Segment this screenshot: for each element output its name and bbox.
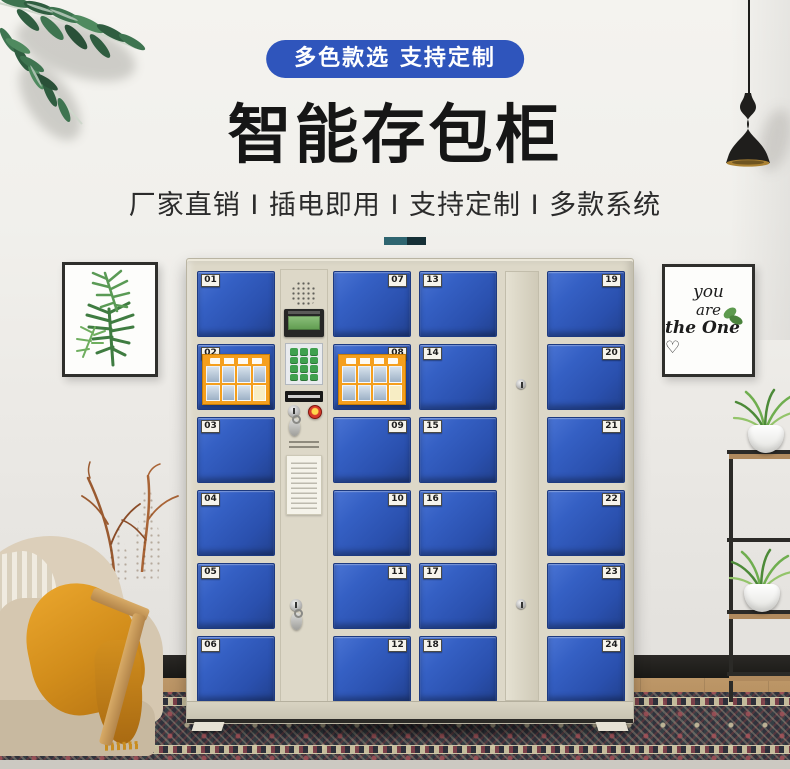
locker-door-19: 19 [547, 271, 625, 337]
keypad-button [300, 365, 308, 372]
shelf-board [729, 676, 790, 681]
door-number-plate: 20 [602, 347, 621, 360]
locker-door-24: 24 [547, 636, 625, 702]
smart-locker-cabinet: 0102030405060708091011121314151617181920… [186, 258, 634, 724]
display-screen [284, 309, 324, 337]
screen-glass [288, 316, 320, 330]
locker-door-08: 08 [333, 344, 411, 410]
poster-thumbnail [358, 366, 372, 383]
leaf-artwork-frame [62, 262, 158, 377]
locker-door-07: 07 [333, 271, 411, 337]
hanging-keys-icon [291, 613, 302, 630]
keypad-button [300, 374, 308, 381]
poster-thumbnail [237, 366, 251, 383]
locker-door-11: 11 [333, 563, 411, 629]
door-number-plate: 23 [602, 566, 621, 579]
door-number-plate: 07 [388, 274, 407, 287]
locker-door-04: 04 [197, 490, 275, 556]
locker-door-01: 01 [197, 271, 275, 337]
door-number-plate: 24 [602, 639, 621, 652]
door-number-plate: 14 [423, 347, 442, 360]
door-number-plate: 17 [423, 566, 442, 579]
key-lock-icon [516, 599, 526, 609]
keypad-button [310, 374, 318, 381]
locker-door-02: 02 [197, 344, 275, 410]
locker-grid: 0102030405060708091011121314151617181920… [194, 269, 628, 703]
script-artwork-frame: you are the One ♡ [662, 264, 755, 377]
subtitle: 厂家直销 I 插电即用 I 支持定制 I 多款系统 [0, 183, 790, 222]
page-title: 智能存包柜 [0, 84, 790, 176]
cabinet-foot [596, 722, 629, 731]
keypad-button [290, 365, 298, 372]
poster-thumbnail [358, 385, 372, 402]
shelf-board [729, 454, 790, 459]
shelf-bar [727, 538, 790, 542]
cabinet-base [187, 701, 633, 723]
keypad-button [310, 365, 318, 372]
locker-door-13: 13 [419, 271, 497, 337]
poster-thumbnail [389, 366, 403, 383]
door-number-plate: 15 [423, 420, 442, 433]
locker-column-doors: 010203040506 [194, 269, 278, 703]
locker-door-20: 20 [547, 344, 625, 410]
door-number-plate: 12 [388, 639, 407, 652]
floor-edge [0, 760, 790, 769]
poster-thumbnail [373, 385, 387, 402]
instruction-paper [286, 455, 322, 515]
poster-grid [342, 366, 402, 401]
locker-door-15: 15 [419, 417, 497, 483]
door-number-plate: 01 [201, 274, 220, 287]
door-number-plate: 09 [388, 420, 407, 433]
poster-thumbnail [253, 385, 267, 402]
locker-door-18: 18 [419, 636, 497, 702]
locker-door-21: 21 [547, 417, 625, 483]
plant-pot [748, 425, 784, 453]
door-number-plate: 11 [388, 566, 407, 579]
door-number-plate: 10 [388, 493, 407, 506]
poster-thumbnail [342, 366, 356, 383]
ticket-slot [285, 391, 323, 402]
door-number-plate: 03 [201, 420, 220, 433]
script-line: are [696, 302, 721, 319]
door-number-plate: 05 [201, 566, 220, 579]
poster-thumbnail [253, 366, 267, 383]
instruction-poster [338, 354, 406, 405]
shelf-board [729, 614, 790, 619]
master-door [505, 271, 539, 701]
locker-column-doors: 192021222324 [544, 269, 628, 703]
poster-title-bar [346, 358, 398, 364]
promo-ribbon: 多色款选 支持定制 [266, 40, 524, 78]
locker-column-doors: 070809101112 [330, 269, 414, 703]
cabinet-foot [192, 722, 225, 731]
locker-column-control [280, 269, 328, 703]
lamp-cord [748, 0, 750, 96]
keypad-button [290, 374, 298, 381]
locker-door-22: 22 [547, 490, 625, 556]
poster-thumbnail [389, 385, 403, 402]
door-number-plate: 13 [423, 274, 442, 287]
keypad-button [300, 348, 308, 355]
locker-door-06: 06 [197, 636, 275, 702]
screen-label [288, 311, 320, 314]
poster-thumbnail [206, 366, 220, 383]
locker-door-03: 03 [197, 417, 275, 483]
keypad-button [310, 357, 318, 364]
locker-door-23: 23 [547, 563, 625, 629]
product-banner-image: 多色款选 支持定制 智能存包柜 厂家直销 I 插电即用 I 支持定制 I 多款系… [0, 0, 790, 769]
script-line: you [693, 283, 724, 303]
poster-thumbnail [342, 385, 356, 402]
door-number-plate: 19 [602, 274, 621, 287]
locker-door-14: 14 [419, 344, 497, 410]
keypad-button [290, 348, 298, 355]
divider-bar [384, 237, 426, 245]
poster-thumbnail [222, 366, 236, 383]
leaf-artwork [65, 265, 155, 374]
locker-door-05: 05 [197, 563, 275, 629]
door-number-plate: 21 [602, 420, 621, 433]
hanging-keys-icon [289, 419, 300, 436]
door-number-plate: 04 [201, 493, 220, 506]
speaker-grille-icon [291, 281, 317, 307]
keypad-button [290, 357, 298, 364]
locker-door-17: 17 [419, 563, 497, 629]
small-leaf-icon [722, 303, 744, 329]
keypad [285, 343, 323, 385]
door-number-plate: 22 [602, 493, 621, 506]
locker-door-10: 10 [333, 490, 411, 556]
locker-column-doors: 131415161718 [416, 269, 500, 703]
door-number-plate: 16 [423, 493, 442, 506]
instruction-poster [202, 354, 270, 405]
keypad-button [300, 357, 308, 364]
poster-title-bar [210, 358, 262, 364]
poster-thumbnail [222, 385, 236, 402]
locker-door-09: 09 [333, 417, 411, 483]
door-number-plate: 06 [201, 639, 220, 652]
locker-door-12: 12 [333, 636, 411, 702]
locker-column-master [502, 269, 542, 703]
poster-grid [206, 366, 266, 401]
locker-door-16: 16 [419, 490, 497, 556]
poster-thumbnail [206, 385, 220, 402]
panel-fine-print [289, 441, 319, 448]
poster-thumbnail [237, 385, 251, 402]
keypad-button [310, 348, 318, 355]
emergency-button [308, 405, 322, 419]
door-number-plate: 18 [423, 639, 442, 652]
poster-thumbnail [373, 366, 387, 383]
key-lock-icon [516, 379, 526, 389]
